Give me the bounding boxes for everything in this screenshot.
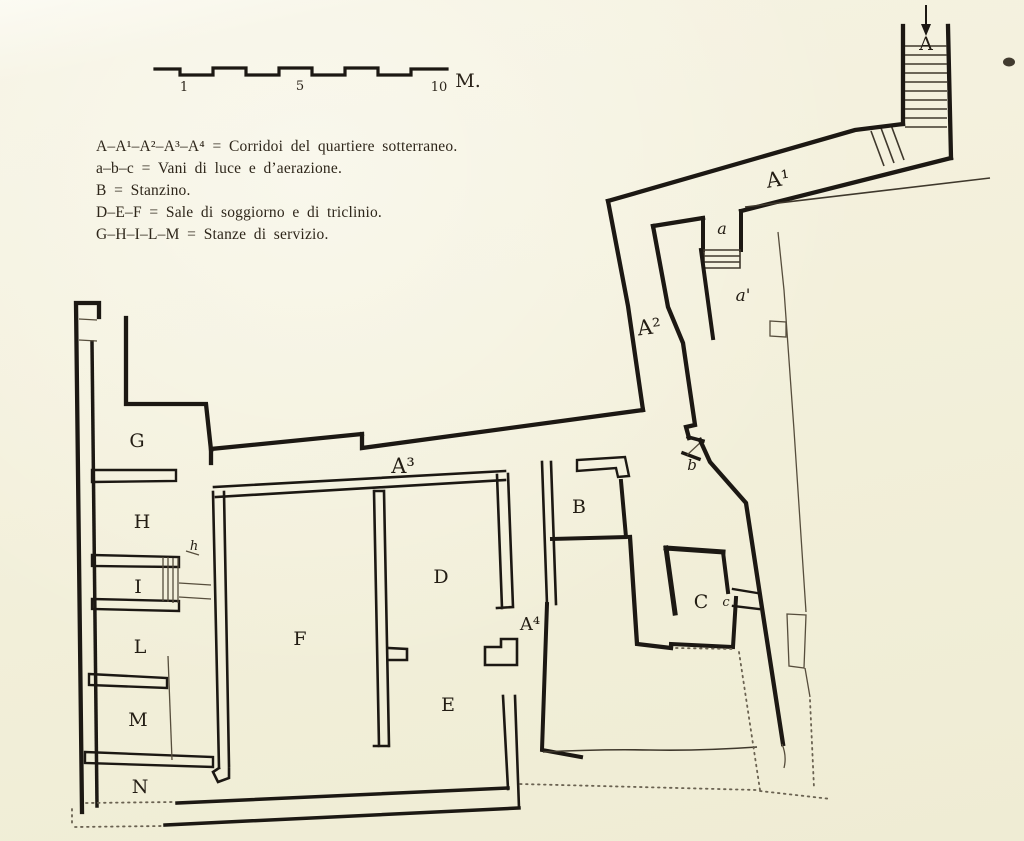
plan-label-M: M [128, 709, 147, 731]
dotted-boundary-lines [72, 648, 831, 827]
terrain-boundary-lines [543, 178, 990, 752]
plan-label-A: A [918, 33, 933, 55]
legend-line-stanzino: B = Stanzino. [96, 180, 576, 202]
legend-line-light-shafts: a–b–c = Vani di luce e d’aerazione. [96, 158, 576, 180]
scale-unit-M: M. [455, 70, 481, 92]
corridor-A3-north-wall [211, 410, 643, 463]
scanned-plan-page: AA¹aa'A²bBCcA³A⁴DEFGHhILMN 1510M. A–A¹–A… [0, 0, 1024, 841]
staircase-A [871, 26, 951, 166]
legend-line-service-rooms: G–H–I–L–M = Stanze di servizio. [96, 224, 576, 246]
entrance-arrow-icon [921, 6, 931, 36]
plan-label-E: E [441, 694, 455, 716]
scale-tick-10: 10 [431, 80, 448, 95]
floor-plan-drawing: AA¹aa'A²bBCcA³A⁴DEFGHhILMN 1510M. [0, 0, 1024, 841]
scale-tick-1: 1 [180, 80, 188, 95]
plan-label-N: N [132, 776, 149, 798]
plan-label-D: D [433, 566, 448, 588]
west-walls [76, 303, 211, 812]
plan-label-A: A¹ [763, 165, 791, 193]
legend-line-corridors: A–A¹–A²–A³–A⁴ = Corridoi del quartiere s… [96, 136, 576, 158]
plan-label-a: a' [736, 286, 751, 306]
plan-label-A: A² [635, 314, 662, 341]
plan-label-a: a [717, 219, 727, 238]
plan-label-L: L [134, 636, 147, 658]
scale-bar [155, 68, 447, 75]
east-boundary-wall [700, 440, 785, 768]
plan-label-A: A⁴ [519, 614, 540, 635]
hall-walls [165, 471, 519, 825]
ink-blot [1003, 58, 1015, 67]
legend-line-living-rooms: D–E–F = Sale di soggiorno e di triclinio… [96, 202, 576, 224]
plan-label-b: b [687, 456, 697, 474]
legend: A–A¹–A²–A³–A⁴ = Corridoi del quartiere s… [96, 136, 576, 246]
plan-label-I: I [134, 576, 142, 598]
plan-label-G: G [129, 430, 144, 452]
plan-label-F: F [293, 628, 306, 650]
plan-label-H: H [134, 511, 151, 533]
plan-label-C: C [694, 591, 709, 613]
plan-label-c: c [722, 595, 730, 610]
plan-label-A: A³ [390, 454, 415, 478]
plan-label-B: B [572, 496, 586, 518]
scale-tick-5: 5 [296, 79, 304, 94]
plan-label-h: h [190, 539, 198, 554]
